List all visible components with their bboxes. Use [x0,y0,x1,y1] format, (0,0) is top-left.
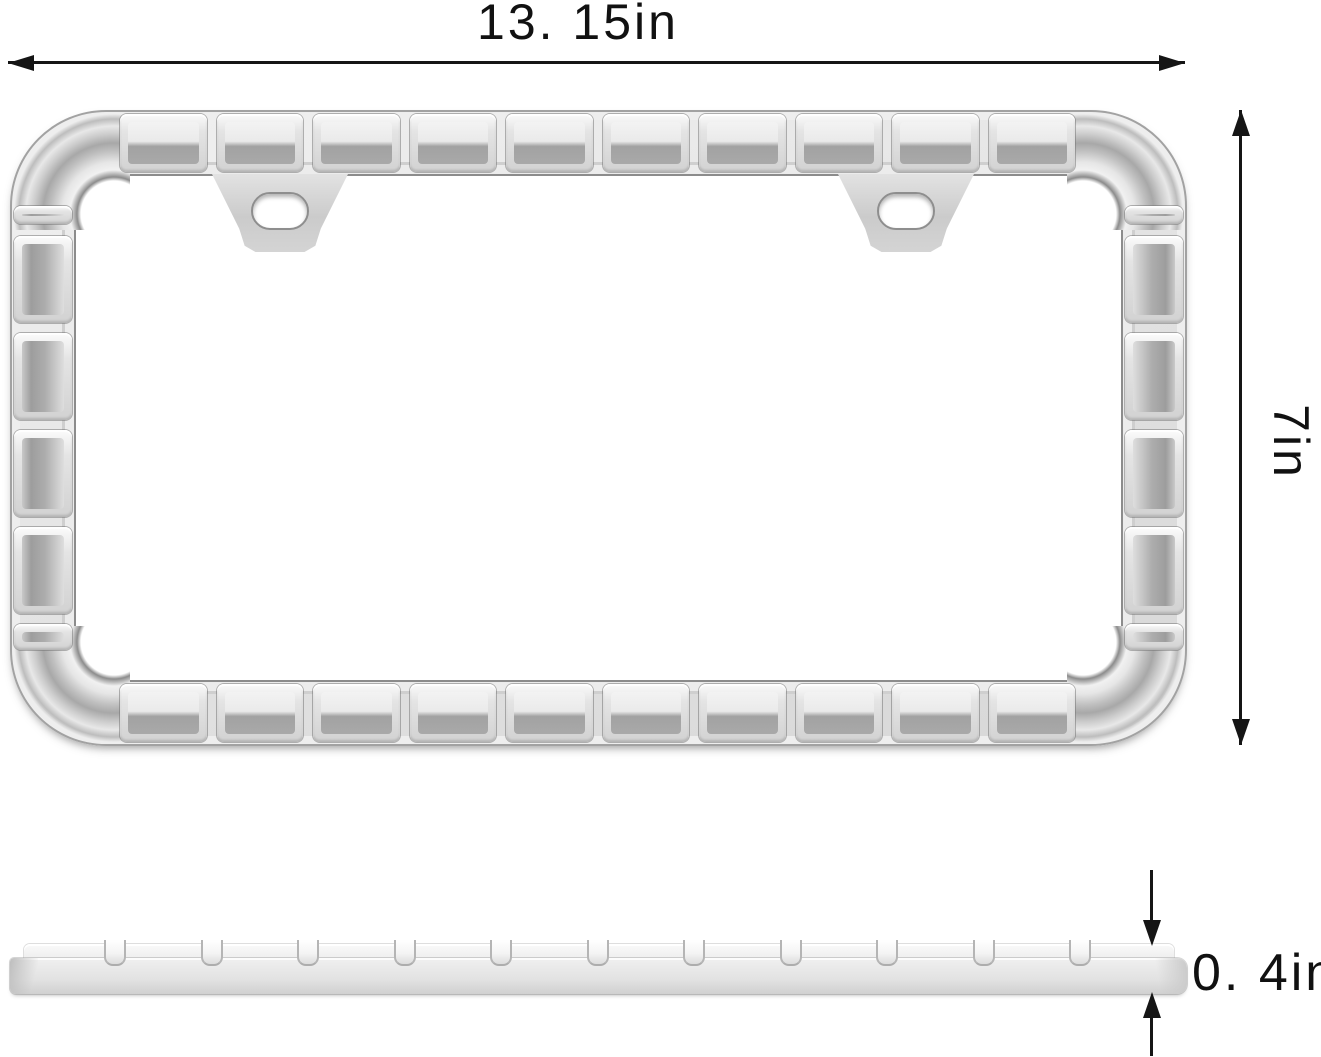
mounting-hole-right [877,192,935,230]
frame-brick [1125,527,1183,614]
frame-brick-panel [1133,632,1175,642]
profile-notch [780,940,802,966]
profile-notch [1069,940,1091,966]
frame-brick-panel [225,122,296,164]
frame-brick-panel [1133,244,1175,315]
frame-brick-panel [707,692,778,734]
mounting-hole-left [251,192,309,230]
profile-notch [394,940,416,966]
frame-brick-panel [321,692,392,734]
frame-brick [217,684,304,742]
frame-brick-panel [707,122,778,164]
frame-brick [14,236,72,323]
frame-brick [892,114,979,172]
frame-brick-panel [997,692,1068,734]
frame-brick-panel [418,122,489,164]
frame-brick [14,527,72,614]
frame-brick-panel [804,692,875,734]
frame-brick-panel [514,122,585,164]
frame-brick [1125,333,1183,420]
height-dimension-line [1239,110,1242,745]
frame-brick [410,684,497,742]
frame-brick [603,684,690,742]
arrow-left-icon [8,55,34,71]
thickness-dimension-label: 0. 4in [1192,947,1321,999]
frame-brick [506,684,593,742]
profile-notch [973,940,995,966]
frame-brick-panel [804,122,875,164]
frame-brick-panel [997,122,1068,164]
frame-brick [120,684,207,742]
frame-brick [217,114,304,172]
frame-brick-panel [22,535,64,606]
frame-brick-panel [22,632,64,642]
frame-brick-panel [611,122,682,164]
frame-brick-panel [1133,341,1175,412]
diagram-canvas: 13. 15in 7in 0. 4in [0,0,1321,1057]
license-plate-frame-front-view [10,110,1187,746]
profile-notch [490,940,512,966]
profile-notch [104,940,126,966]
frame-brick-panel [418,692,489,734]
frame-brick [1125,624,1183,650]
frame-brick-panel [1133,535,1175,606]
frame-brick-panel [1133,438,1175,509]
frame-brick-panel [22,341,64,412]
frame-brick [1125,236,1183,323]
frame-brick-panel [22,214,64,216]
frame-brick-panel [611,692,682,734]
height-dimension-label: 7in [1266,404,1316,480]
frame-brick-panel [22,244,64,315]
thickness-dimension-line-bottom [1150,1014,1153,1056]
arrow-up-icon [1232,110,1250,136]
frame-brick-panel [128,122,199,164]
frame-brick [1125,206,1183,224]
frame-brick-panel [22,438,64,509]
frame-brick [14,430,72,517]
frame-brick-panel [321,122,392,164]
frame-brick-panel [900,122,971,164]
frame-brick [892,684,979,742]
frame-brick [989,114,1076,172]
frame-brick [120,114,207,172]
profile-notch [683,940,705,966]
frame-brick [989,684,1076,742]
frame-brick [699,114,786,172]
frame-brick [14,624,72,650]
frame-brick [1125,430,1183,517]
frame-brick [699,684,786,742]
frame-brick [603,114,690,172]
arrow-right-icon [1159,55,1185,71]
frame-brick [14,333,72,420]
frame-brick [313,684,400,742]
frame-brick-panel [225,692,296,734]
frame-brick [796,114,883,172]
profile-notch [201,940,223,966]
width-dimension-line [8,61,1185,64]
profile-notch [587,940,609,966]
width-dimension-label: 13. 15in [477,0,679,47]
profile-notch [876,940,898,966]
frame-brick-panel [514,692,585,734]
frame-opening [76,176,1121,680]
frame-brick [313,114,400,172]
frame-brick [14,206,72,224]
arrow-down-icon [1143,920,1161,946]
frame-brick-panel [900,692,971,734]
thickness-dimension-line-top [1150,870,1153,922]
frame-brick-panel [1133,214,1175,216]
frame-brick-panel [128,692,199,734]
arrow-down-icon [1232,719,1250,745]
frame-brick [410,114,497,172]
profile-notch [297,940,319,966]
arrow-up-icon [1143,992,1161,1018]
frame-brick [506,114,593,172]
frame-brick [796,684,883,742]
